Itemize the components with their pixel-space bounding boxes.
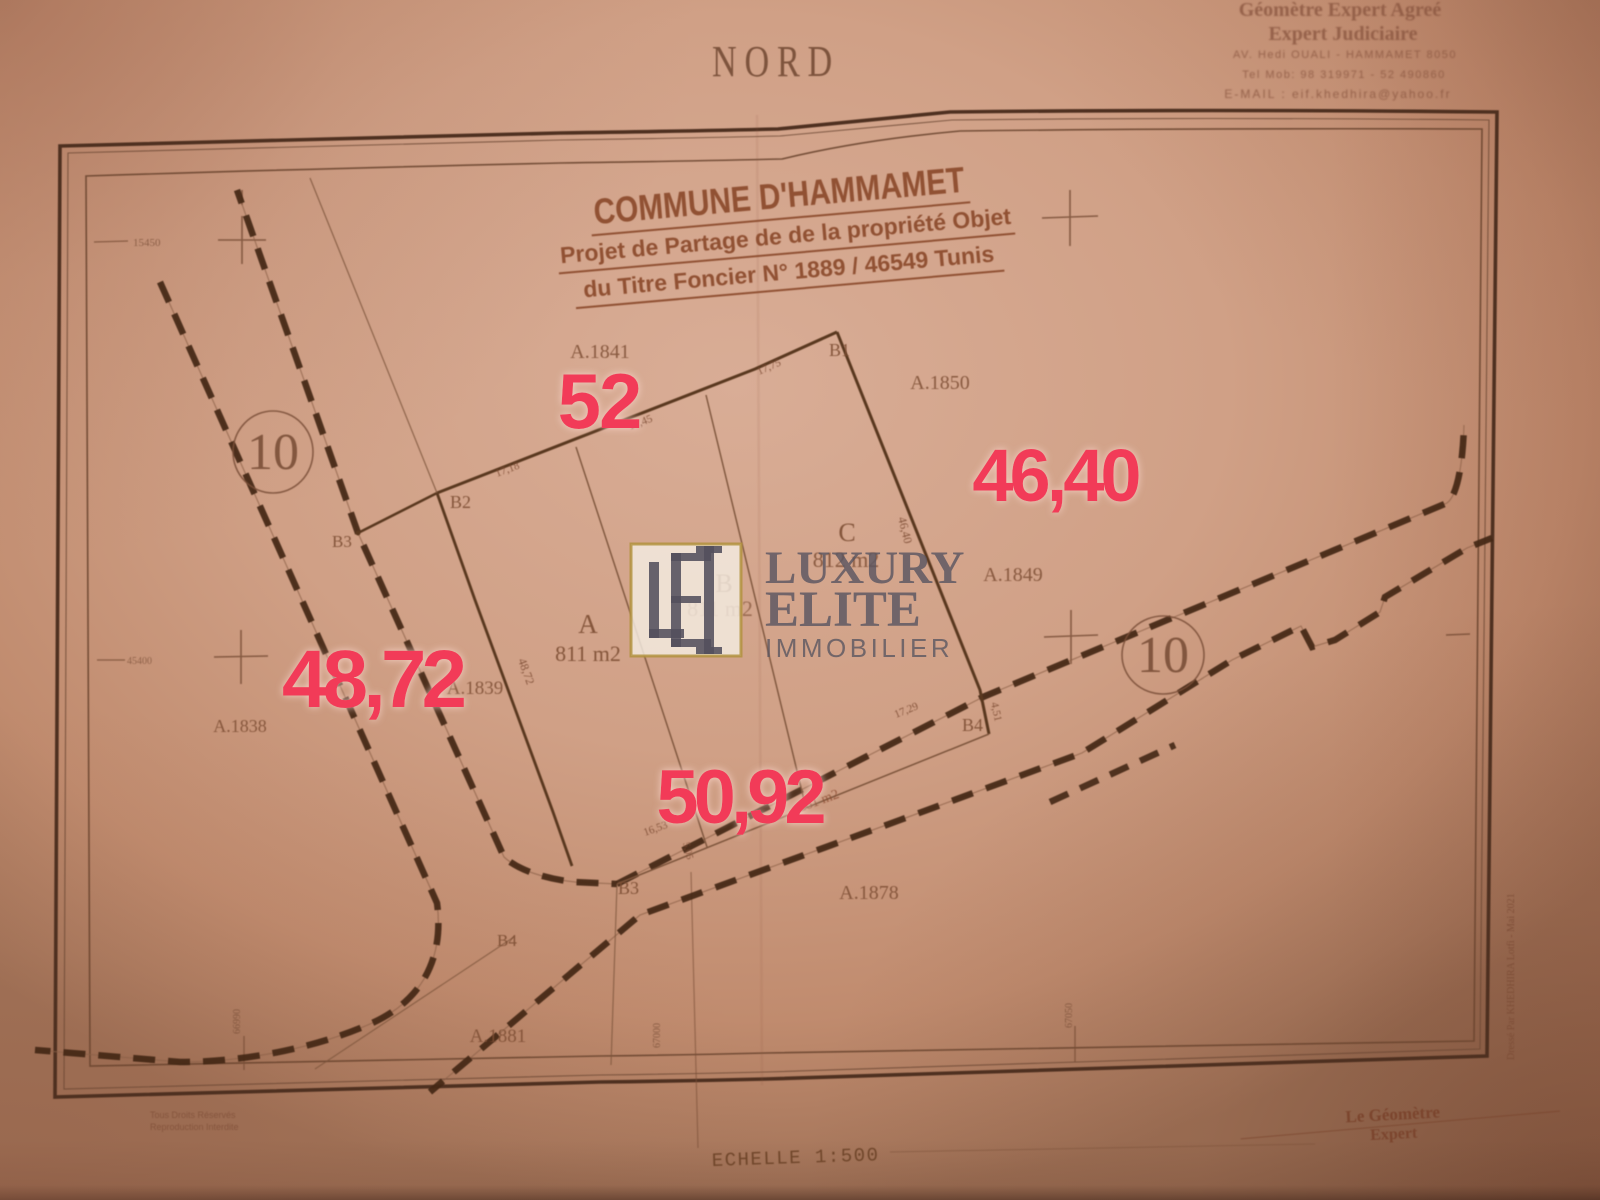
svg-text:52: 52: [558, 357, 641, 445]
svg-text:Tous Droits Réservés: Tous Droits Réservés: [150, 1110, 236, 1120]
svg-text:Dressé Par KHEDHIRA Lotfi - Ma: Dressé Par KHEDHIRA Lotfi - Mai 2021: [1506, 893, 1517, 1060]
svg-text:B3: B3: [618, 878, 639, 898]
svg-text:A.1878: A.1878: [839, 882, 898, 904]
svg-text:A.1849: A.1849: [983, 564, 1042, 586]
svg-text:Reproduction Interdite: Reproduction Interdite: [150, 1122, 239, 1132]
svg-text:A.1881: A.1881: [470, 1026, 526, 1047]
svg-text:45400: 45400: [127, 656, 152, 667]
svg-text:50,92: 50,92: [656, 755, 824, 840]
svg-text:E-MAIL : eif.khedhira@yahoo.fr: E-MAIL : eif.khedhira@yahoo.fr: [1224, 87, 1451, 101]
svg-text:67050: 67050: [1064, 1003, 1075, 1028]
svg-text:46,40: 46,40: [972, 434, 1139, 517]
svg-text:A: A: [578, 609, 598, 639]
svg-text:Expert: Expert: [1370, 1125, 1419, 1144]
svg-text:B2: B2: [450, 492, 471, 512]
svg-text:NORD: NORD: [712, 37, 840, 86]
svg-text:10: 10: [1137, 627, 1189, 684]
svg-text:A.1838: A.1838: [213, 716, 267, 736]
svg-text:IMMOBILIER: IMMOBILIER: [765, 633, 953, 663]
svg-text:811 m2: 811 m2: [555, 641, 621, 666]
svg-text:67000: 67000: [652, 1023, 663, 1048]
svg-text:48,72: 48,72: [282, 634, 465, 725]
svg-text:B4: B4: [497, 931, 517, 950]
svg-text:Géomètre Expert Agreé: Géomètre Expert Agreé: [1239, 0, 1442, 21]
svg-text:66990: 66990: [232, 1009, 243, 1034]
svg-text:Tel Mob: 98 319971 - 52 490860: Tel Mob: 98 319971 - 52 490860: [1242, 69, 1445, 81]
svg-text:10: 10: [247, 424, 299, 481]
svg-text:ELITE: ELITE: [765, 582, 921, 638]
svg-text:A.1850: A.1850: [910, 372, 969, 394]
svg-text:Expert Judiciaire: Expert Judiciaire: [1268, 23, 1417, 45]
svg-text:15450: 15450: [133, 237, 161, 249]
svg-text:B1: B1: [829, 340, 850, 360]
svg-text:B3: B3: [332, 532, 352, 551]
svg-text:AV. Hedi OUALI - HAMMAMET 8050: AV. Hedi OUALI - HAMMAMET 8050: [1233, 49, 1457, 61]
svg-text:B4: B4: [962, 715, 983, 735]
